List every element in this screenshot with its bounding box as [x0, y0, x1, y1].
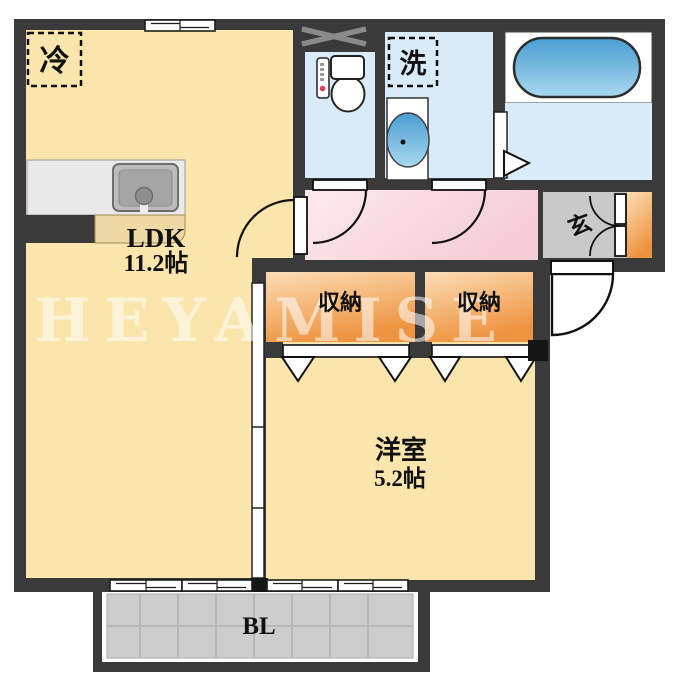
western-room-size-label: 5.2帖: [374, 466, 426, 491]
laundry-label: 洗: [400, 49, 427, 79]
window-balcony-1: [110, 580, 182, 591]
cabinet-door-leaf-upper: [615, 194, 626, 224]
basin-drain: [401, 140, 406, 145]
watermark-text: HEYAMISE: [34, 286, 510, 356]
bathroom-floor: [505, 103, 652, 180]
storage2-label: 収納: [457, 290, 501, 315]
fridge-label: 冷: [40, 45, 70, 78]
floor-plan-svg: HEYAMISE 冷 洗 LDK 11.2帖 玄 収納 収納 洋室 5.2帖 B…: [0, 0, 680, 686]
western-room-label: 洋室: [375, 435, 427, 465]
storage1-label: 収納: [318, 290, 362, 315]
ldk-door-leaf: [294, 197, 307, 254]
wall-corner-block: [528, 340, 548, 361]
window-ldk-top: [145, 20, 215, 31]
window-balcony-4: [338, 580, 408, 591]
ldk-size-label: 11.2帖: [124, 250, 189, 277]
toilet-bowl: [332, 77, 365, 112]
faucet-icon: [136, 188, 153, 205]
floor-plan: HEYAMISE 冷 洗 LDK 11.2帖 玄 収納 収納 洋室 5.2帖 B…: [0, 0, 680, 686]
toilet-tank: [331, 56, 364, 79]
washroom-door-leaf: [432, 180, 486, 190]
front-door-arc: [552, 274, 613, 335]
hallway-floor: [305, 190, 538, 260]
shoe-cabinet: [627, 192, 652, 258]
basin-bowl: [387, 113, 429, 167]
front-door: [551, 261, 613, 335]
window-balcony-2: [182, 580, 252, 591]
panel-led: [320, 86, 326, 92]
kitchen-wall-stub: [14, 215, 95, 243]
balcony-label: BL: [242, 613, 275, 640]
bathtub-icon: [514, 38, 640, 97]
window-balcony-3: [267, 580, 338, 591]
cabinet-door-leaf-lower: [615, 226, 626, 256]
toilet-door-leaf: [313, 180, 367, 190]
front-door-leaf: [551, 261, 613, 274]
ldk-label: LDK: [127, 223, 186, 253]
washbasin-icon: [387, 98, 429, 180]
